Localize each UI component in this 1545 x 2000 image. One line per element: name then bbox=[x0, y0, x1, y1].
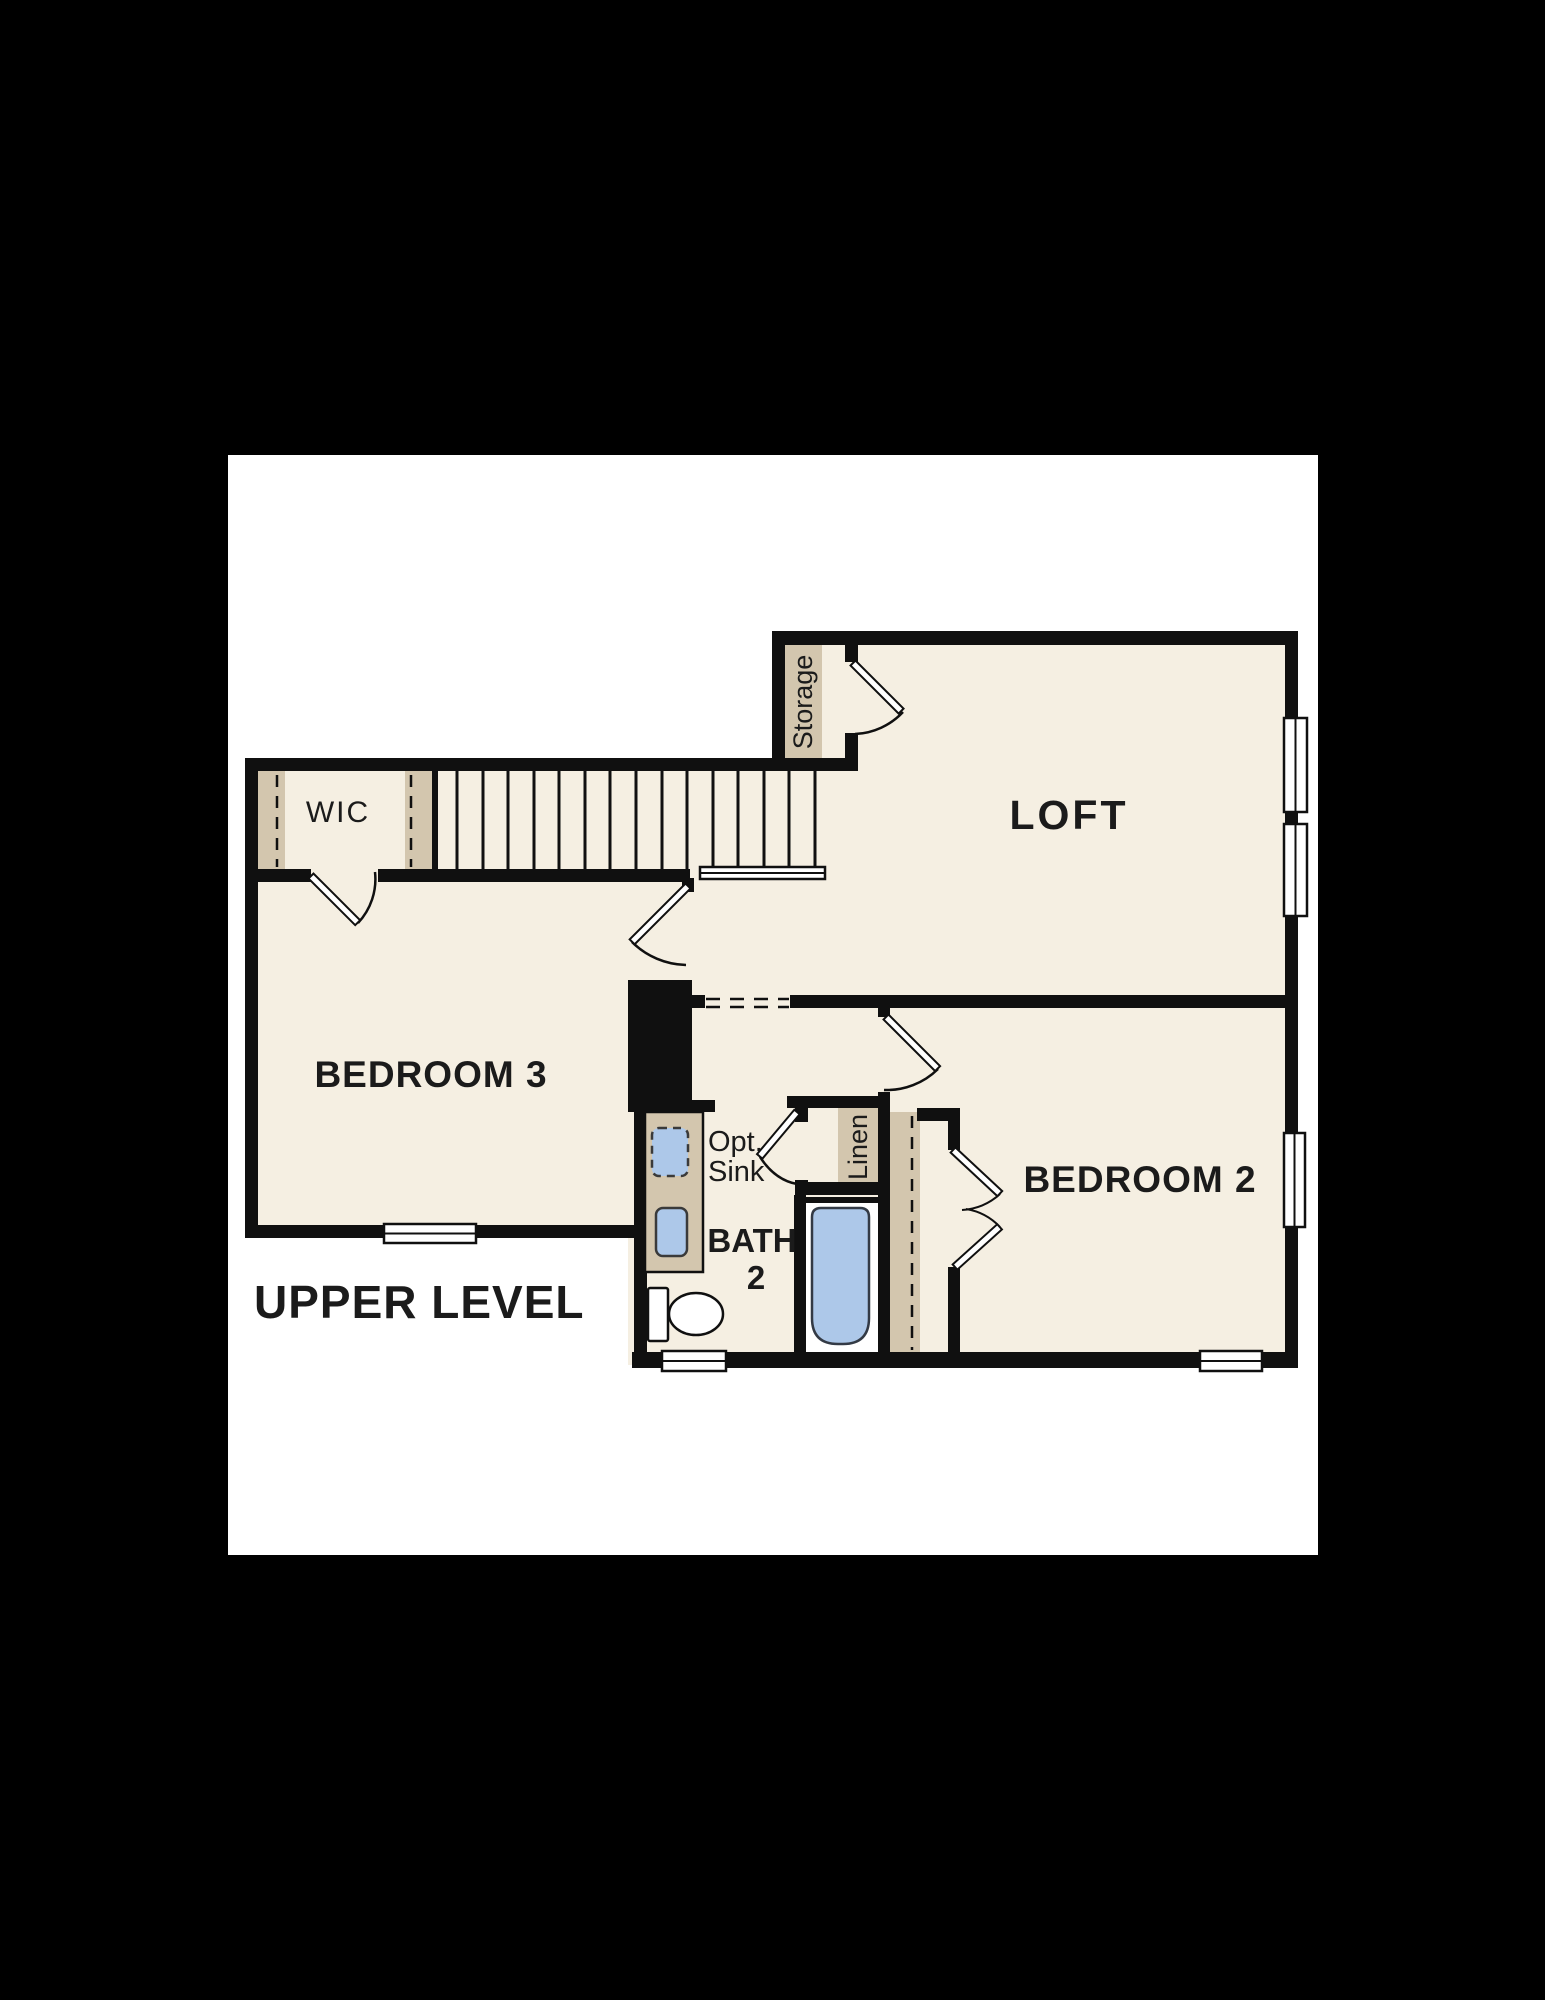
wall-stair-divider bbox=[432, 771, 438, 869]
sink-optional bbox=[652, 1128, 688, 1176]
wall-storage-left bbox=[772, 631, 785, 771]
bathtub bbox=[806, 1197, 878, 1352]
wall-top-loft bbox=[772, 631, 1298, 645]
wall-bedroom2-closet-jamb-top bbox=[948, 1112, 960, 1150]
annotation-opt-sink-line1: Opt. bbox=[708, 1126, 763, 1158]
wall-loft-bedroom2 bbox=[790, 995, 1298, 1008]
wic-shelf-right bbox=[405, 771, 435, 869]
window-bedroom3-south bbox=[384, 1224, 476, 1243]
room-label-bath2-line1: BATH bbox=[707, 1222, 796, 1259]
wall-storage-jamb-bottom bbox=[845, 733, 858, 771]
stair-landing-rail bbox=[700, 867, 825, 879]
wall-storage-jamb-top bbox=[845, 645, 858, 662]
window-bedroom2-east bbox=[1284, 1133, 1305, 1227]
window-bedroom2-south bbox=[1200, 1351, 1262, 1371]
wall-bedroom2-closet-jamb-bottom bbox=[948, 1267, 960, 1352]
room-label-linen: Linen bbox=[843, 1114, 873, 1180]
room-label-bath2-line2: 2 bbox=[747, 1259, 765, 1296]
floor-bedroom3 bbox=[250, 870, 645, 1235]
wall-stairs-bottom bbox=[378, 869, 690, 882]
bedroom2-closet-shelf bbox=[890, 1112, 920, 1352]
room-label-wic: WIC bbox=[306, 796, 370, 829]
wic-shelf-left bbox=[258, 771, 285, 869]
bathtub-basin bbox=[812, 1208, 869, 1344]
wall-hall-stub bbox=[690, 995, 705, 1008]
window-bath-south bbox=[662, 1351, 726, 1371]
wall-chunk-hall bbox=[628, 980, 692, 1112]
annotation-opt-sink-line2: Sink bbox=[708, 1156, 765, 1188]
sink bbox=[656, 1208, 687, 1256]
wall-outer-left bbox=[245, 758, 258, 1238]
window-loft-east-upper bbox=[1284, 718, 1307, 812]
window-loft-east-lower bbox=[1284, 824, 1307, 916]
upper-level-floor-plan: LOFT BEDROOM 3 BEDROOM 2 BATH 2 WIC Stor… bbox=[228, 455, 1318, 1555]
wall-tub-left bbox=[794, 1195, 806, 1352]
room-label-bedroom3: BEDROOM 3 bbox=[314, 1054, 547, 1095]
room-label-bedroom2: BEDROOM 2 bbox=[1023, 1159, 1256, 1200]
wall-bottom-main bbox=[632, 1352, 1298, 1368]
floor-plan-page: { "page": { "title": "UPPER LEVEL" }, "r… bbox=[0, 0, 1545, 2000]
wall-bedroom2-west bbox=[878, 1092, 890, 1352]
room-label-loft: LOFT bbox=[1009, 792, 1128, 838]
wall-vanity-top-stub bbox=[647, 1100, 715, 1112]
floor-plan-canvas: LOFT BEDROOM 3 BEDROOM 2 BATH 2 WIC Stor… bbox=[228, 455, 1318, 1555]
wall-linen-top bbox=[787, 1096, 890, 1108]
room-label-storage: Storage bbox=[788, 655, 818, 750]
wall-top-wic-stairs bbox=[245, 758, 858, 771]
page-title: UPPER LEVEL bbox=[254, 1276, 585, 1328]
wall-linen-bottom bbox=[795, 1182, 890, 1195]
